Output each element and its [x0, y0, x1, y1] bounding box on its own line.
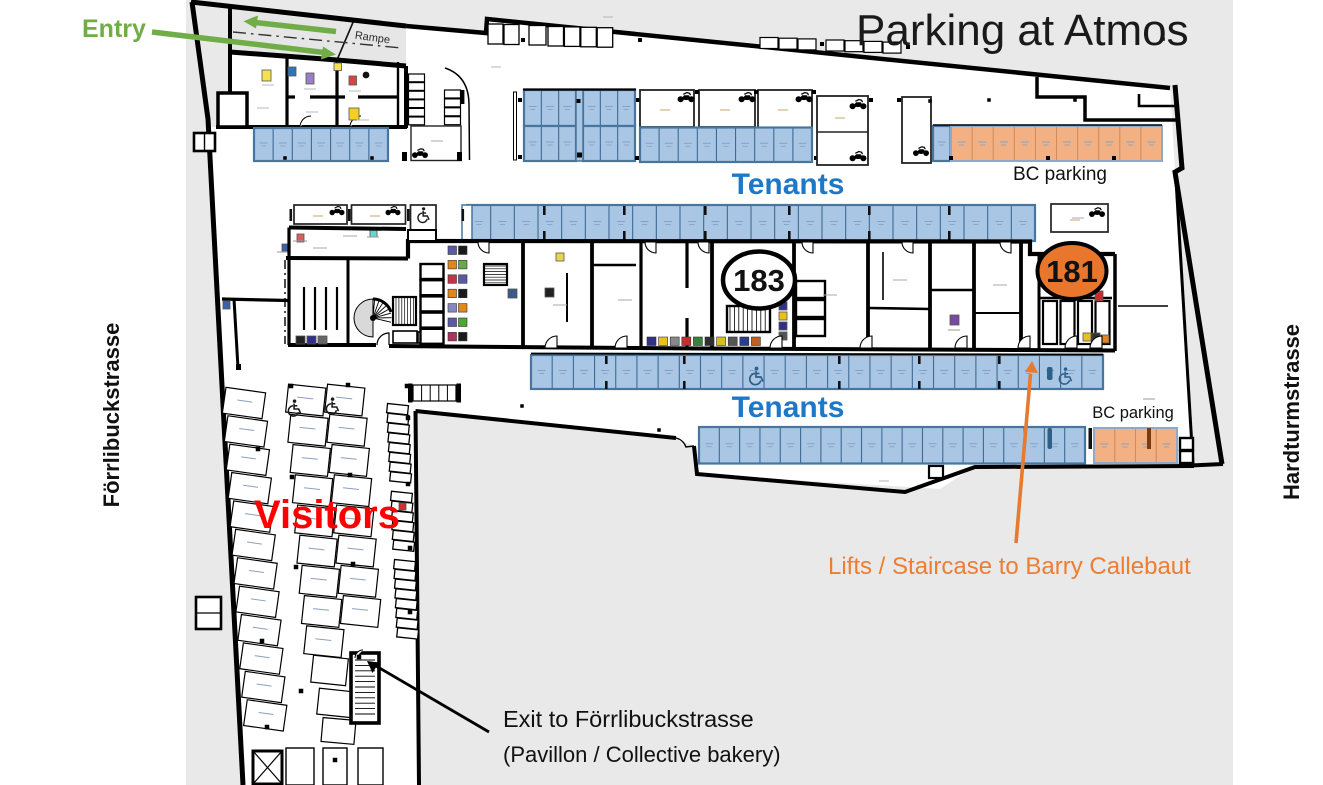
- svg-text:BC parking: BC parking: [1013, 164, 1107, 185]
- svg-text:Lifts / Staircase to Barry Cal: Lifts / Staircase to Barry Callebaut: [828, 553, 1191, 580]
- svg-text:Tenants: Tenants: [732, 168, 845, 201]
- svg-text:181: 181: [1046, 254, 1098, 289]
- svg-text:(Pavillon / Collective bakery): (Pavillon / Collective bakery): [503, 742, 781, 767]
- svg-text:183: 183: [733, 263, 785, 298]
- svg-text:Parking at Atmos: Parking at Atmos: [856, 6, 1189, 55]
- svg-text:Visitors: Visitors: [254, 493, 400, 537]
- svg-text:Förrlibuckstrasse: Förrlibuckstrasse: [99, 323, 124, 508]
- svg-text:Hardturmstrasse: Hardturmstrasse: [1279, 324, 1304, 500]
- svg-text:BC parking: BC parking: [1092, 404, 1174, 422]
- svg-text:Exit to Förrlibuckstrasse: Exit to Förrlibuckstrasse: [503, 706, 754, 732]
- svg-text:Tenants: Tenants: [732, 391, 845, 424]
- svg-text:Entry: Entry: [82, 15, 146, 43]
